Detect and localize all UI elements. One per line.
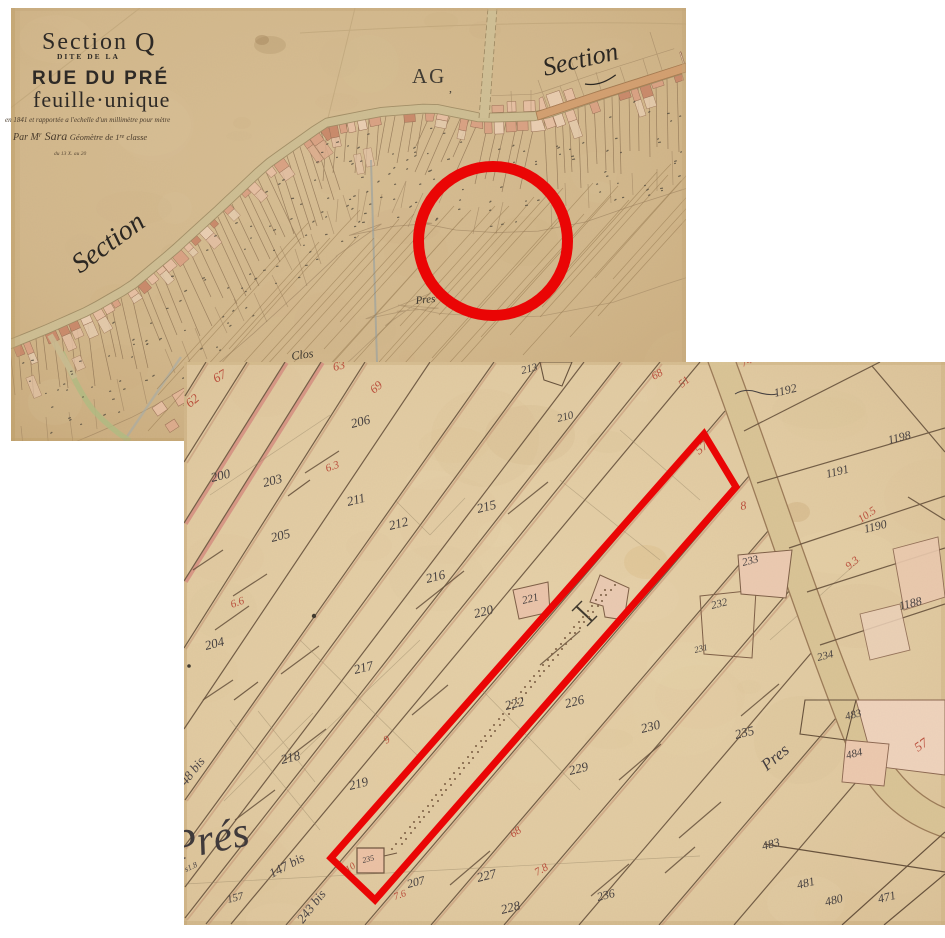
svg-text:Pres: Pres <box>414 293 436 307</box>
svg-text:,: , <box>449 81 452 95</box>
svg-text:DITE DE LA: DITE DE LA <box>57 52 120 61</box>
svg-text:en 1841 et rapportée a l'echel: en 1841 et rapportée a l'echelle d'un mi… <box>5 116 170 124</box>
svg-text:feuille·unique: feuille·unique <box>33 87 170 112</box>
svg-text:Par Mr Sara Géomètre de 1re cl: Par Mr Sara Géomètre de 1re classe <box>12 129 147 143</box>
svg-text:du 13 X. au 20: du 13 X. au 20 <box>54 151 86 157</box>
svg-text:Q: Q <box>135 27 155 57</box>
svg-text:RUE DU PRÉ: RUE DU PRÉ <box>32 67 169 89</box>
svg-text:AG: AG <box>412 64 446 88</box>
